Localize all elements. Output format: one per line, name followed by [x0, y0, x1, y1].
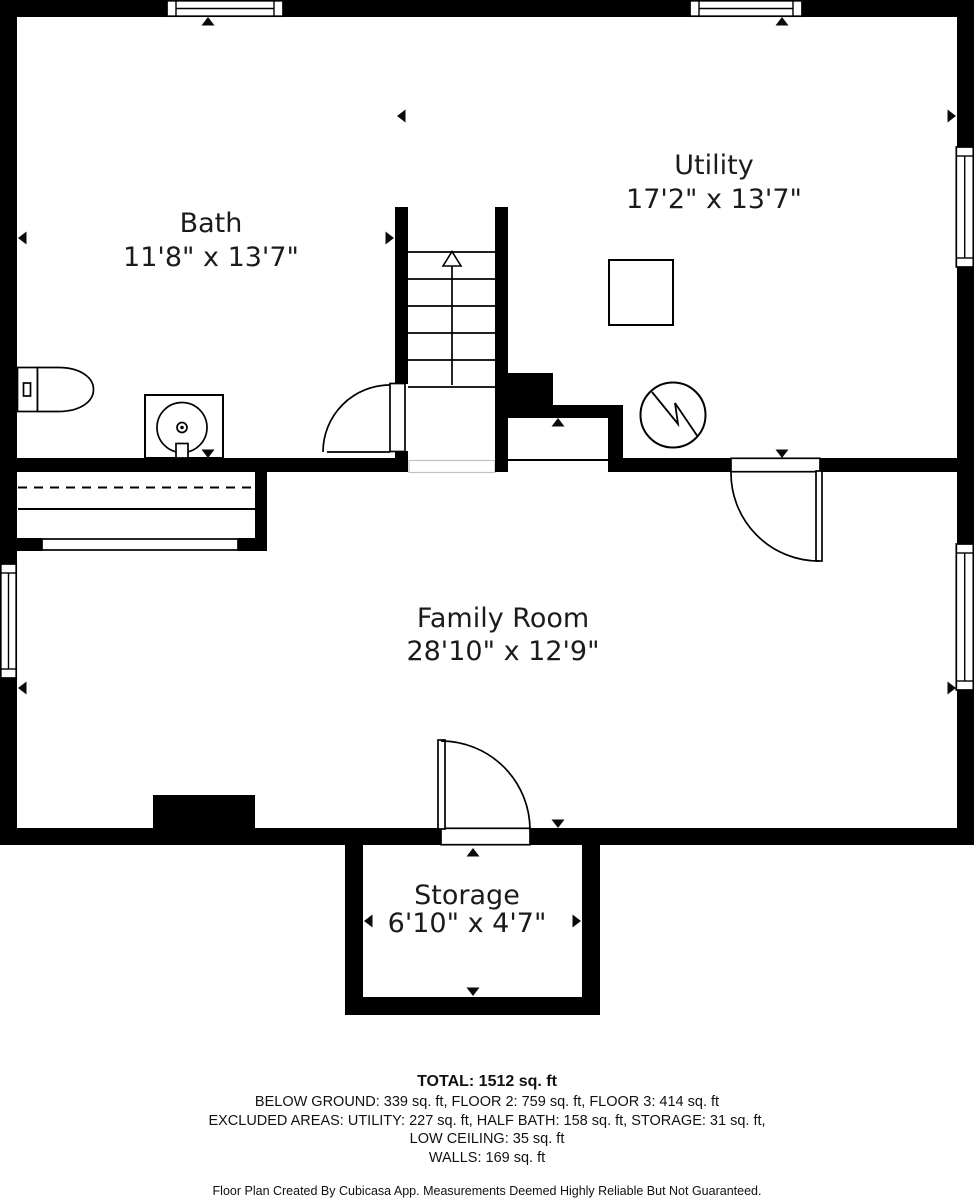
closet-low-ceiling-area — [18, 488, 255, 551]
closet-wall-stub-right — [238, 538, 267, 551]
utility-door — [731, 458, 822, 561]
arrow-right-icon — [948, 682, 957, 695]
arrow-down-icon — [776, 450, 789, 459]
storage-wall-bottom — [345, 997, 600, 1015]
arrow-up-icon — [202, 17, 215, 26]
utility-step-wall — [508, 405, 622, 418]
stairwell-wall-left-upper — [395, 207, 408, 384]
arrow-down-icon — [202, 450, 215, 459]
room-label-storage: Storage — [414, 880, 520, 911]
arrow-right-icon — [948, 110, 957, 123]
window-top-right — [690, 1, 802, 16]
summary-floors: BELOW GROUND: 339 sq. ft, FLOOR 2: 759 s… — [0, 1094, 974, 1110]
interior-walls — [0, 207, 957, 828]
utility-south-wall-left — [608, 458, 731, 472]
outer-walls — [0, 0, 974, 1015]
room-dims-bath: 11'8" x 13'7" — [123, 242, 299, 273]
arrow-down-icon — [467, 988, 480, 997]
arrow-right-icon — [573, 915, 582, 928]
arrow-left-icon — [364, 915, 373, 928]
staircase — [408, 252, 495, 388]
utility-appliance-icon — [609, 260, 673, 325]
room-dims-family-room: 28'10" x 12'9" — [406, 636, 599, 667]
room-dims-utility: 17'2" x 13'7" — [626, 184, 802, 215]
wall-top — [0, 0, 974, 17]
arrow-up-icon — [776, 17, 789, 26]
storage-wall-right — [582, 845, 600, 1015]
windows — [1, 1, 974, 690]
toilet-icon — [18, 368, 94, 412]
stair-up-arrow-icon — [443, 252, 461, 267]
arrow-up-icon — [552, 418, 565, 427]
wall-right — [957, 0, 974, 845]
fireplace-block — [153, 795, 255, 828]
room-label-utility: Utility — [674, 150, 753, 181]
window-right-lower — [956, 544, 973, 690]
window-left — [1, 564, 16, 678]
stair-landing-threshold — [409, 461, 495, 473]
summary-excluded2: LOW CEILING: 35 sq. ft — [0, 1131, 974, 1147]
bath-door-swing-arc — [323, 385, 390, 452]
storage-wall-left — [345, 845, 363, 1015]
arrow-left-icon — [18, 232, 27, 245]
bath-door — [323, 384, 405, 453]
shower-icon — [145, 395, 223, 458]
utility-south-wall-right — [820, 458, 957, 472]
window-top-left — [167, 1, 283, 16]
summary-total: TOTAL: 1512 sq. ft — [0, 1073, 974, 1091]
bath-south-wall — [0, 458, 408, 472]
arrow-right-icon — [386, 232, 395, 245]
summary-walls: WALLS: 169 sq. ft — [0, 1150, 974, 1166]
storage-door-swing-arc — [441, 741, 530, 830]
room-label-bath: Bath — [180, 208, 243, 239]
storage-door — [438, 740, 530, 845]
room-dims-storage: 6'10" x 4'7" — [388, 908, 547, 939]
arrow-up-icon — [467, 848, 480, 857]
arrow-down-icon — [552, 820, 565, 829]
window-right-upper — [956, 147, 973, 267]
room-label-family-room: Family Room — [417, 603, 589, 634]
water-heater-icon — [641, 383, 706, 448]
stairwell-wall-right — [495, 207, 508, 472]
arrow-left-icon — [397, 110, 406, 123]
arrow-left-icon — [18, 682, 27, 695]
floor-plan-page: Bath 11'8" x 13'7" Utility 17'2" x 13'7"… — [0, 0, 974, 1199]
wall-left — [0, 0, 17, 845]
fixtures — [18, 260, 706, 458]
summary-excluded: EXCLUDED AREAS: UTILITY: 227 sq. ft, HAL… — [0, 1113, 974, 1129]
floor-plan-drawing: Bath 11'8" x 13'7" Utility 17'2" x 13'7"… — [0, 0, 974, 1199]
utility-door-swing-arc — [731, 471, 819, 561]
closet-opening — [42, 539, 238, 550]
closet-wall-stub-left — [17, 538, 42, 551]
disclaimer: Floor Plan Created By Cubicasa App. Meas… — [0, 1184, 974, 1198]
